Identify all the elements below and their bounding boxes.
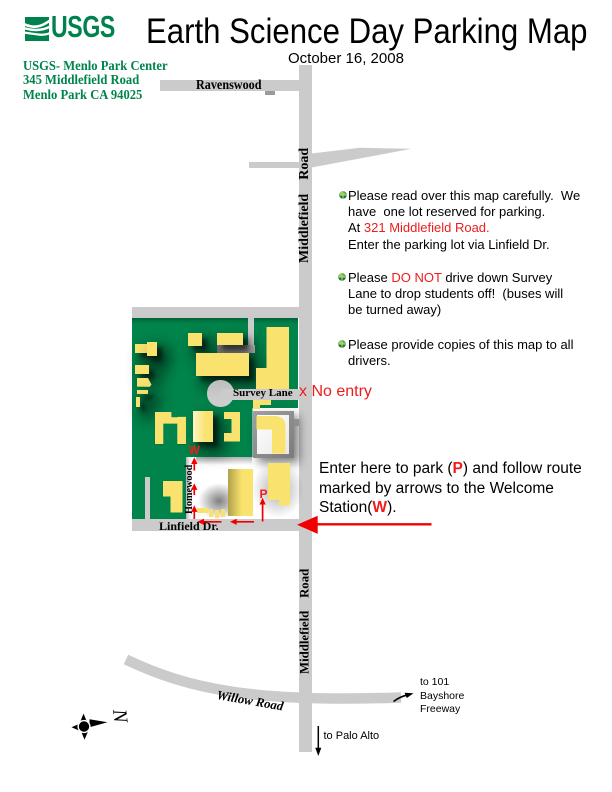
- svg-text:N: N: [108, 707, 132, 726]
